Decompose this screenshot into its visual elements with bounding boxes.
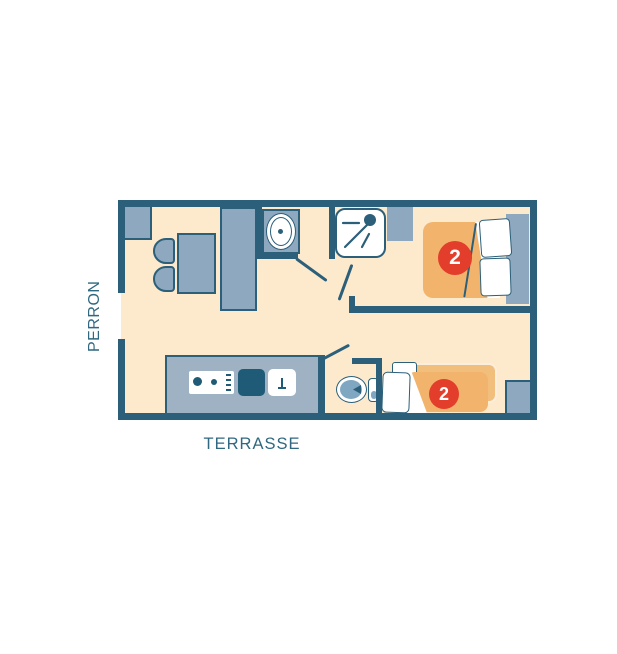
dining-table [177,233,216,294]
stove-burner [211,379,217,385]
single-bed-front-pillow [381,372,410,414]
wall-right [530,200,537,420]
counter-worktop [238,369,265,396]
floor-plan-canvas: 2 2 PERRON TERRASSE [0,0,617,654]
wall-left-upper [118,200,125,293]
double-bedroom-capacity-badge: 2 [438,241,472,275]
wall-wc-right [376,358,382,413]
wall-bedroom-divider-cap [349,296,355,313]
wall-shower-side [329,204,335,259]
stove-control [226,384,231,386]
wall-left-lower [118,339,125,420]
stove-control [226,374,231,376]
water-heater-unit [387,207,413,241]
perron-label: PERRON [86,281,104,352]
washbasin-drain-dot [278,229,283,234]
wall-bottom [118,413,537,420]
wall-bathroom-left [256,200,262,259]
wall-bathroom-stub [256,253,298,259]
twin-bedroom-capacity-badge: 2 [429,379,459,409]
terrasse-label: TERRASSE [178,435,326,454]
stove-control [226,389,231,391]
stove-control [226,379,231,381]
shower [335,208,386,258]
double-bed-pillow [479,257,511,296]
twin-bedroom-nightstand [505,380,530,413]
wall-bedroom-divider [349,306,530,313]
kitchen-faucet-icon [281,378,283,387]
wardrobe [220,207,257,311]
wall-kitchen-end [318,355,325,413]
kitchen-faucet-icon [278,387,286,389]
double-bed-pillow [479,218,513,258]
shower-head-icon [337,210,383,255]
dining-chair [153,238,175,264]
dining-chair [153,266,175,292]
stove-burner [193,377,202,386]
entrance-cabinet [125,207,152,240]
wall-top [118,200,537,207]
